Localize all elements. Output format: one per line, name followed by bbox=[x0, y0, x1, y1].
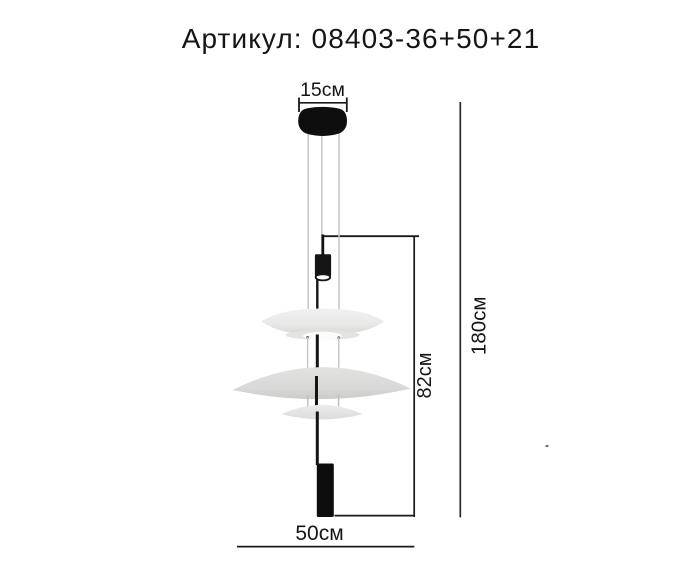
svg-text:180см: 180см bbox=[467, 297, 490, 356]
svg-text:82см: 82см bbox=[414, 353, 436, 399]
svg-text:15см: 15см bbox=[300, 79, 345, 101]
svg-text:50см: 50см bbox=[295, 522, 343, 545]
svg-text:Артикул: 08403-36+50+21: Артикул: 08403-36+50+21 bbox=[182, 23, 541, 54]
